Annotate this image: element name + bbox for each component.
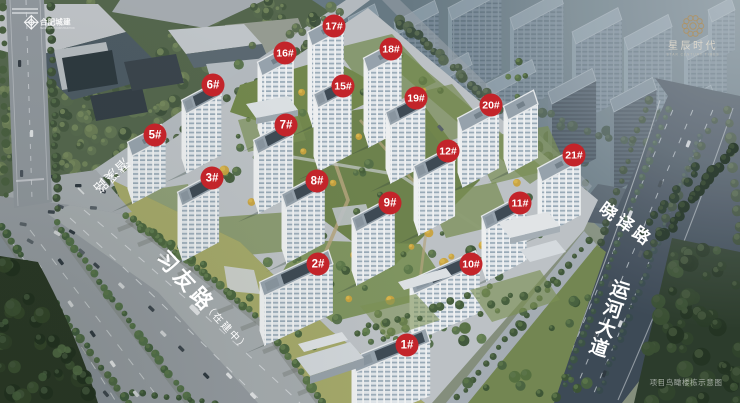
svg-text:8#: 8#	[311, 176, 324, 188]
svg-text:5#: 5#	[149, 130, 162, 142]
svg-text:17#: 17#	[325, 21, 343, 33]
svg-text:项目鸟瞰楼栋示意图: 项目鸟瞰楼栋示意图	[650, 377, 723, 387]
svg-text:HEFEI URBAN CONSTRUCTION: HEFEI URBAN CONSTRUCTION	[40, 27, 75, 30]
svg-text:18#: 18#	[382, 44, 400, 56]
svg-text:11#: 11#	[512, 198, 529, 210]
svg-text:9#: 9#	[384, 198, 397, 210]
svg-text:12#: 12#	[439, 146, 457, 158]
svg-text:21#: 21#	[565, 150, 583, 162]
svg-text:2#: 2#	[312, 259, 325, 271]
svg-text:7#: 7#	[280, 120, 293, 132]
svg-text:1#: 1#	[401, 340, 414, 352]
svg-text:16#: 16#	[276, 48, 294, 60]
svg-text:3#: 3#	[206, 173, 219, 185]
svg-text:星辰时代: 星辰时代	[668, 40, 718, 52]
svg-text:6#: 6#	[207, 80, 220, 92]
svg-text:STAR CENTURY TIMES: STAR CENTURY TIMES	[666, 53, 719, 57]
svg-text:10#: 10#	[462, 259, 480, 271]
svg-text:19#: 19#	[407, 93, 425, 105]
svg-text:合肥城建: 合肥城建	[39, 18, 71, 27]
svg-text:20#: 20#	[482, 100, 500, 112]
svg-text:15#: 15#	[334, 81, 352, 93]
